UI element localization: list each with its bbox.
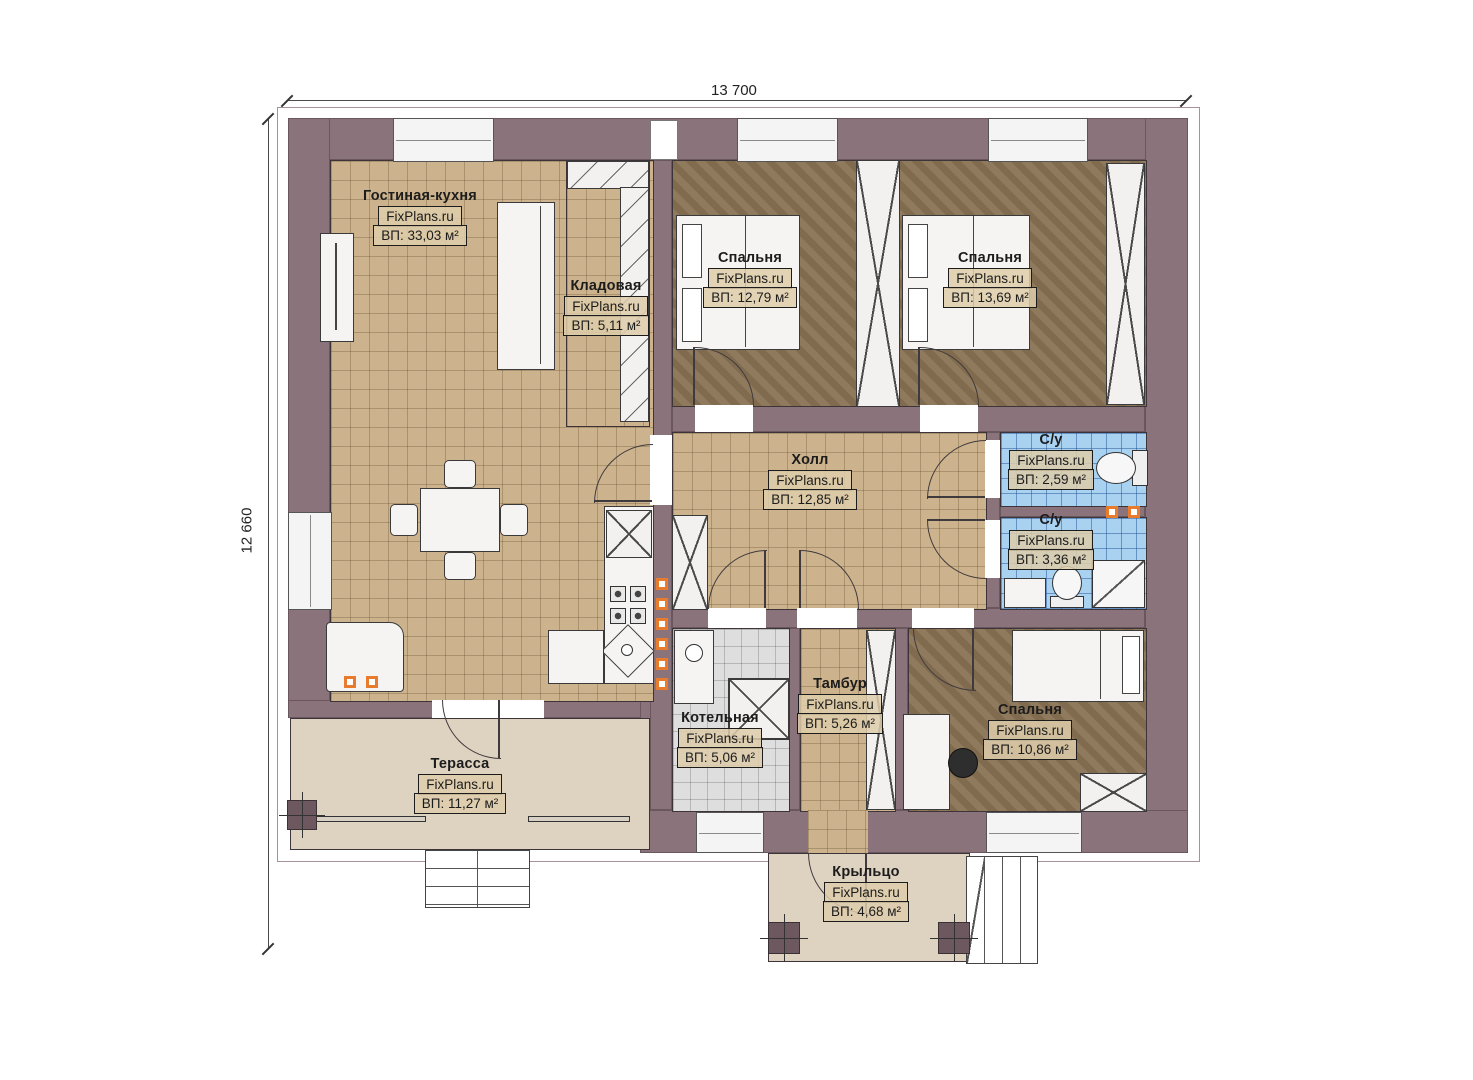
door-opening <box>808 810 868 853</box>
room-area: ВП: 10,86 м² <box>983 739 1077 760</box>
room-label-bathroom-1: С/у FixPlans.ru ВП: 2,59 м² <box>1006 432 1096 490</box>
wall <box>1145 118 1188 853</box>
room-name: Холл <box>748 452 872 468</box>
tv-stand <box>320 233 354 342</box>
room-name: С/у <box>1006 512 1096 528</box>
window <box>696 812 764 853</box>
kitchen-cabinet <box>548 630 604 684</box>
orange-marker <box>1106 506 1118 518</box>
room-area: ВП: 5,06 м² <box>677 747 763 768</box>
door-opening <box>912 608 974 628</box>
room-watermark: FixPlans.ru <box>768 470 852 491</box>
dining-table <box>420 488 500 552</box>
stove-burner <box>630 608 646 624</box>
door-opening <box>650 435 672 505</box>
orange-marker <box>656 578 668 590</box>
room-label-boiler-room: Котельная FixPlans.ru ВП: 5,06 м² <box>658 710 782 768</box>
washbasin <box>1004 578 1046 608</box>
room-label-bedroom-3: Спальня FixPlans.ru ВП: 10,86 м² <box>966 702 1094 760</box>
orange-marker <box>656 618 668 630</box>
room-watermark: FixPlans.ru <box>824 882 908 903</box>
window <box>393 118 494 162</box>
window <box>986 812 1082 853</box>
room-label-vestibule: Тамбур FixPlans.ru ВП: 5,26 м² <box>780 676 900 734</box>
room-label-living-kitchen: Гостиная-кухня FixPlans.ru ВП: 33,03 м² <box>330 188 510 246</box>
chair <box>444 460 476 488</box>
hall-closet <box>672 515 708 610</box>
dimension-width-label: 13 700 <box>705 82 763 99</box>
room-area: ВП: 12,79 м² <box>703 287 797 308</box>
room-watermark: FixPlans.ru <box>988 720 1072 741</box>
door-opening <box>985 520 1000 578</box>
room-name: Крыльцо <box>806 864 926 880</box>
terrace-steps <box>425 850 530 908</box>
orange-marker <box>344 676 356 688</box>
room-area: ВП: 5,26 м² <box>797 713 883 734</box>
room-area: ВП: 12,85 м² <box>763 489 857 510</box>
orange-marker <box>1128 506 1140 518</box>
door-leaf <box>799 550 801 608</box>
room-label-porch: Крыльцо FixPlans.ru ВП: 4,68 м² <box>806 864 926 922</box>
shower <box>1092 560 1145 608</box>
dimension-tick <box>281 95 294 108</box>
porch-steps <box>966 856 1038 964</box>
chair <box>500 504 528 536</box>
wardrobe <box>1080 773 1147 812</box>
room-label-bedroom-1: Спальня FixPlans.ru ВП: 12,79 м² <box>690 250 810 308</box>
room-name: Терасса <box>395 756 525 772</box>
orange-marker <box>656 598 668 610</box>
toilet <box>1096 452 1136 484</box>
room-name: Гостиная-кухня <box>330 188 510 204</box>
chair <box>390 504 418 536</box>
room-name: Котельная <box>658 710 782 726</box>
window <box>288 512 332 610</box>
orange-marker <box>656 678 668 690</box>
wardrobe <box>1106 163 1145 405</box>
porch-post <box>768 922 800 954</box>
door-opening <box>708 608 766 628</box>
room-watermark: FixPlans.ru <box>418 774 502 795</box>
window <box>737 118 838 162</box>
terrace-post <box>287 800 317 830</box>
room-watermark: FixPlans.ru <box>948 268 1032 289</box>
orange-marker <box>656 658 668 670</box>
room-label-bathroom-2: С/у FixPlans.ru ВП: 3,36 м² <box>1006 512 1096 570</box>
bed-blanket-line <box>1100 631 1101 699</box>
room-name: Спальня <box>925 250 1055 266</box>
vent-shaft <box>650 120 678 160</box>
storage-shelf <box>567 161 649 189</box>
room-label-storage: Кладовая FixPlans.ru ВП: 5,11 м² <box>554 278 658 336</box>
stove-burner <box>610 608 626 624</box>
orange-marker <box>656 638 668 650</box>
door-opening <box>695 405 753 432</box>
room-label-terrace: Терасса FixPlans.ru ВП: 11,27 м² <box>395 756 525 814</box>
sofa-back-line <box>540 206 541 364</box>
room-label-bedroom-2: Спальня FixPlans.ru ВП: 13,69 м² <box>925 250 1055 308</box>
room-area: ВП: 4,68 м² <box>823 901 909 922</box>
desk <box>903 714 950 810</box>
room-watermark: FixPlans.ru <box>678 728 762 749</box>
room-name: Спальня <box>690 250 810 266</box>
door-opening <box>985 440 1000 498</box>
window <box>988 118 1088 162</box>
door-leaf <box>972 628 974 690</box>
wardrobe <box>856 160 900 407</box>
terrace-railing <box>316 816 426 822</box>
fridge <box>606 510 652 558</box>
door-leaf <box>764 550 766 608</box>
stove-burner <box>610 586 626 602</box>
room-watermark: FixPlans.ru <box>798 694 882 715</box>
terrace-railing <box>528 816 630 822</box>
room-area: ВП: 13,69 м² <box>943 287 1037 308</box>
room-watermark: FixPlans.ru <box>708 268 792 289</box>
bed-pillow <box>1122 636 1140 694</box>
room-name: Кладовая <box>554 278 658 294</box>
room-name: Спальня <box>966 702 1094 718</box>
wall <box>288 118 330 718</box>
door-opening <box>920 405 978 432</box>
armchair <box>326 622 404 692</box>
boiler-sink <box>685 644 703 662</box>
door-leaf <box>594 500 652 502</box>
kitchen-sink-drain <box>621 644 633 656</box>
room-name: С/у <box>1006 432 1096 448</box>
dimension-tick <box>1180 95 1193 108</box>
boiler-counter <box>674 630 714 704</box>
room-area: ВП: 5,11 м² <box>563 315 648 336</box>
door-leaf <box>927 496 985 498</box>
room-watermark: FixPlans.ru <box>378 206 462 227</box>
stove-burner <box>630 586 646 602</box>
room-label-hall: Холл FixPlans.ru ВП: 12,85 м² <box>748 452 872 510</box>
room-area: ВП: 2,59 м² <box>1008 469 1094 490</box>
door-leaf <box>498 700 500 758</box>
door-leaf <box>927 519 985 521</box>
chair <box>444 552 476 580</box>
toilet <box>1052 566 1082 600</box>
tv-screen <box>335 243 337 330</box>
room-name: Тамбур <box>780 676 900 692</box>
floor-plan-canvas: 13 700 12 660 <box>0 0 1473 1080</box>
door-leaf <box>918 347 920 405</box>
room-area: ВП: 11,27 м² <box>414 793 507 814</box>
room-watermark: FixPlans.ru <box>564 296 648 317</box>
room-watermark: FixPlans.ru <box>1009 450 1093 471</box>
orange-marker <box>366 676 378 688</box>
room-watermark: FixPlans.ru <box>1009 530 1093 551</box>
dimension-width-line <box>287 100 1186 101</box>
door-opening <box>797 608 857 628</box>
door-leaf <box>693 347 695 405</box>
room-area: ВП: 3,36 м² <box>1008 549 1094 570</box>
porch-post <box>938 922 970 954</box>
room-area: ВП: 33,03 м² <box>373 225 467 246</box>
dimension-height-line <box>268 118 269 948</box>
dimension-height-label: 12 660 <box>238 502 255 560</box>
